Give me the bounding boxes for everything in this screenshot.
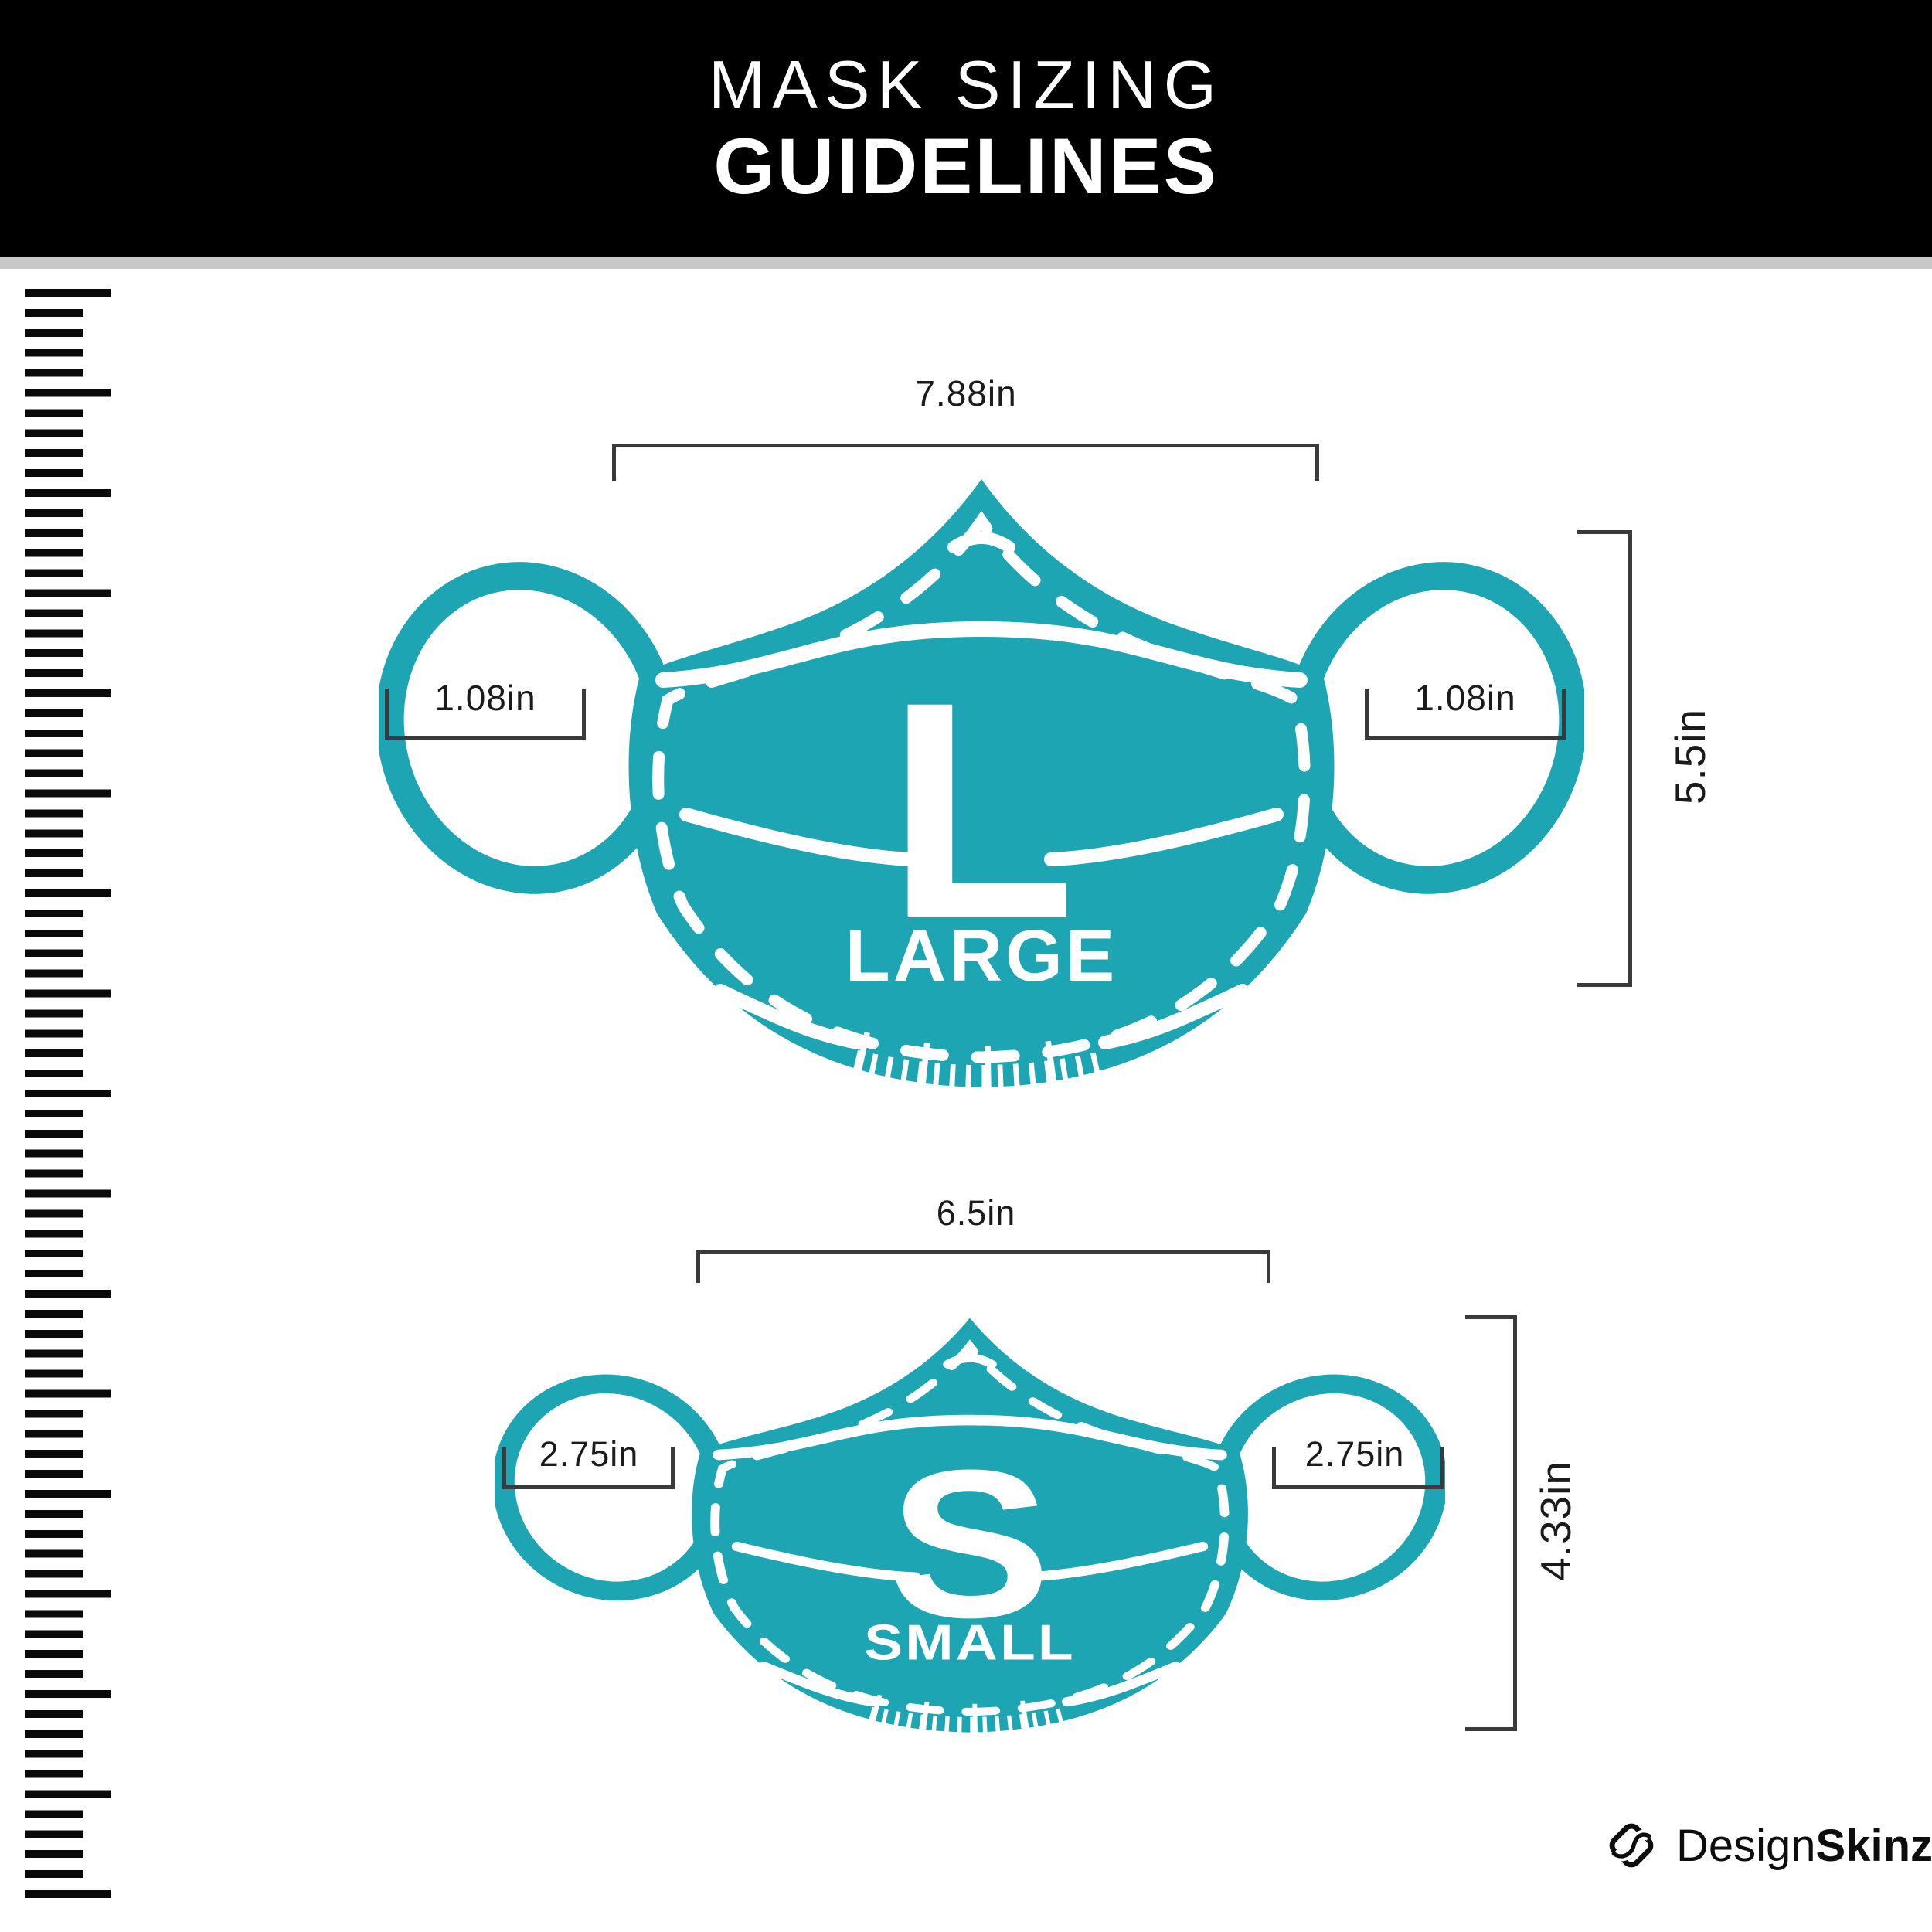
large-left-ear-bracket [385,689,586,740]
large-height-label: 5.5in [1665,709,1715,804]
header-banner: MASK SIZING GUIDELINES [0,0,1932,257]
small-height-bracket [1465,1315,1517,1731]
title-line1: MASK SIZING [709,51,1223,119]
title-line2: GUIDELINES [713,127,1218,206]
small-mask-illustration: S SMALL [495,1314,1445,1735]
large-height-bracket [1577,530,1632,987]
header-divider [0,257,1932,269]
small-width-label: 6.5in [937,1193,1016,1233]
small-left-ear-bracket [502,1447,675,1489]
designskinz-logo-icon [1602,1815,1661,1876]
large-mask-size-word: LARGE [845,915,1118,997]
ruler-icon [25,289,135,1901]
brand-logo: DesignSkinz [1602,1815,1932,1876]
ruler-minor-ticks [25,289,83,1901]
brand-name-bold: Skinz [1816,1821,1932,1871]
brand-name: DesignSkinz [1676,1820,1932,1872]
large-right-ear-bracket [1365,689,1566,740]
large-mask-illustration: L LARGE [379,473,1584,1091]
large-width-label: 7.88in [915,372,1016,414]
small-height-label: 4.33in [1531,1461,1580,1581]
small-right-ear-bracket [1272,1447,1444,1489]
brand-name-regular: Design [1676,1821,1816,1871]
mask-sizing-infographic: MASK SIZING GUIDELINES [0,0,1932,1932]
small-width-bracket [696,1250,1270,1283]
small-mask-size-word: SMALL [864,1614,1076,1670]
